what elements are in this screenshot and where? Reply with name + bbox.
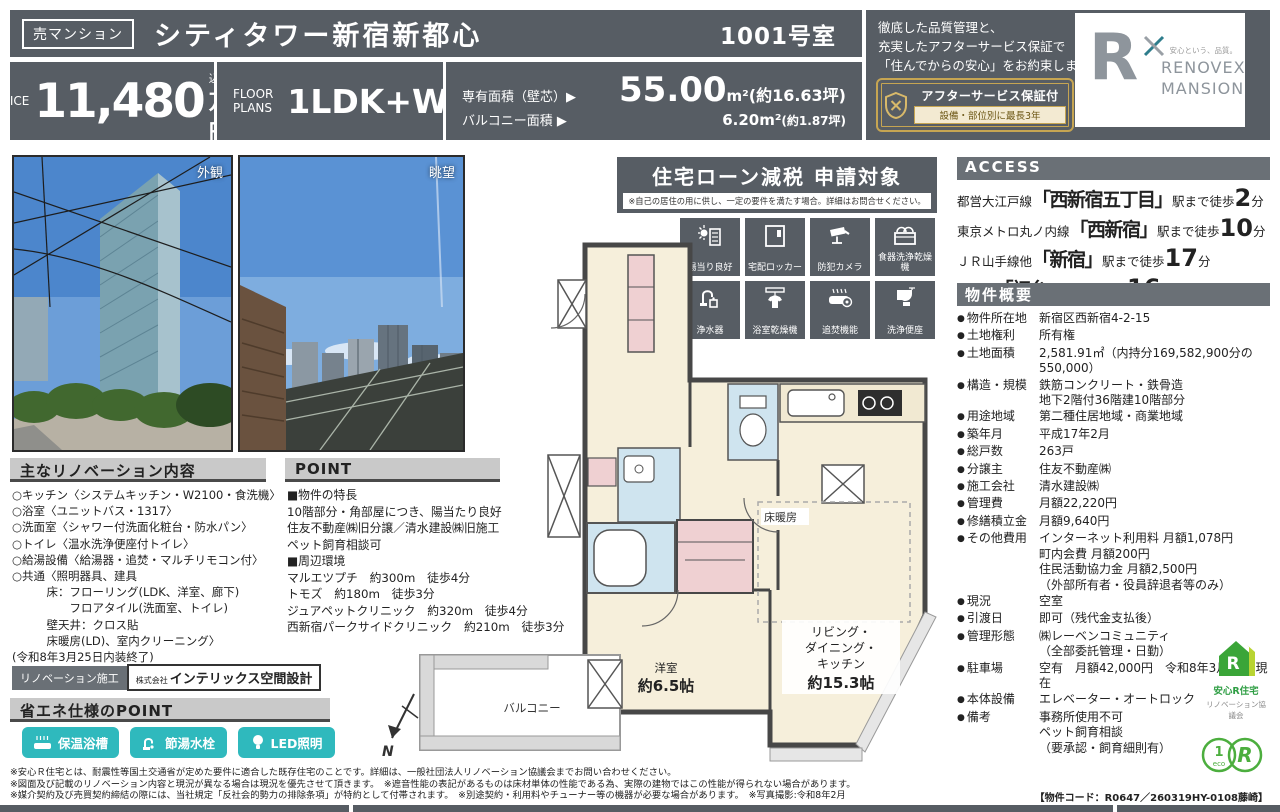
renovation-item: ○洗面室〈シャワー付洗面化粧台・防水パン〉: [12, 519, 287, 535]
price-label: PRICE: [0, 94, 29, 108]
room-number: 1001号室: [720, 17, 836, 51]
eco-r-badges: 1 eco R: [1200, 732, 1266, 778]
bottom-bar-gap: [1113, 805, 1117, 812]
disclaimer-block: ※安心Ｒ住宅とは、耐震性等国土交通省が定めた要件に適合した既存住宅のことです。詳…: [10, 767, 1020, 802]
point-list: ■物件の特長10階部分・角部屋につき、陽当たり良好住友不動産㈱旧分譲／清水建設㈱…: [287, 487, 587, 636]
overview-value: 住友不動産㈱: [1039, 462, 1111, 478]
overview-label: 引渡日: [957, 611, 1039, 627]
bathroom: [587, 523, 675, 593]
point-line: 住友不動産㈱旧分譲／清水建設㈱旧施工: [287, 520, 587, 537]
overview-label: 備考: [957, 710, 1039, 756]
overview-row: 総戸数 263戸: [957, 444, 1277, 460]
floor-heating-label: 床暖房: [764, 510, 797, 524]
overview-value: 空室: [1039, 594, 1063, 610]
quality-line2: 充実したアフターサービス保証で: [878, 37, 1101, 56]
exclusive-area-label: 専有面積（壁芯）▶: [462, 86, 576, 105]
renovex-x-icon: [1143, 35, 1165, 57]
floor-label-line2: PLANS: [233, 101, 272, 115]
ldk-line2: ダイニング・: [805, 640, 877, 655]
access-line: ＪＲ山手線他「新宿」駅まで徒歩17分: [957, 244, 1275, 272]
view-photo-label: 眺望: [429, 162, 455, 181]
access-line: 東京メトロ丸ノ内線「西新宿」駅まで徒歩10分: [957, 214, 1275, 242]
minutes-unit: 分: [1198, 251, 1211, 270]
renovation-list: ○キッチン〈システムキッチン・W2100・食洗機〉○浴室〈ユニットバス・1317…: [12, 487, 287, 665]
renovex-r-glyph: R: [1089, 21, 1138, 95]
quality-line3: 「住んでからの安心」をお約束します。: [878, 56, 1101, 75]
floor-plan-value: 1LDK+W: [287, 82, 448, 121]
rail-line: 東京メトロ丸ノ内線: [957, 221, 1070, 240]
overview-label: 本体設備: [957, 692, 1039, 708]
renovation-item: ○キッチン〈システムキッチン・W2100・食洗機〉: [12, 487, 287, 503]
sale-type-badge: 売マンション: [22, 19, 134, 49]
eco-btn-bath: 保温浴槽: [22, 727, 119, 758]
bottom-bar-gap: [349, 805, 353, 812]
area-cell: 専有面積（壁芯）▶ 55.00 m² (約16.63坪) バルコニー面積 ▶ 6…: [446, 62, 862, 140]
overview-row: 構造・規模 鉄筋コンクリート・鉄骨造地下2階付36階建10階部分: [957, 378, 1277, 409]
exterior-photo: 外観: [12, 155, 233, 452]
eco-circle-number: 1: [1214, 745, 1223, 760]
overview-label: 用途地域: [957, 409, 1039, 425]
anshin-org: リノベーション協議会: [1203, 699, 1269, 721]
compass-north: N: [382, 694, 418, 760]
anshin-name: 安心R住宅: [1203, 683, 1269, 697]
overview-value: エレベーター・オートロック: [1039, 692, 1195, 708]
overview-value: 新宿区西新宿4-2-15: [1039, 311, 1150, 327]
walk-minutes: 2: [1235, 184, 1252, 212]
renovation-item: 壁天井：クロス貼: [12, 617, 287, 633]
point-line: 西新宿パークサイドクリニック 約210m 徒歩3分: [287, 619, 587, 636]
overview-row: 物件所在地 新宿区西新宿4-2-15: [957, 311, 1277, 327]
after-service-warranty-badge: アフターサービス保証付 設備・部位別に最長3年: [876, 78, 1074, 132]
renovation-item: 床：フローリング(LDK、洋室、廊下): [12, 584, 287, 600]
overview-row: 土地面積 2,581.91㎡（内持分169,582,900分の550,000）: [957, 346, 1277, 377]
station-name: 「新宿」: [1032, 245, 1102, 272]
balcony-area-value: 6.20m²: [722, 111, 781, 129]
logo-name: RENOVEX MANSION: [1161, 57, 1246, 99]
overview-row: 用途地域 第二種住居地域・商業地域: [957, 409, 1277, 425]
overview-value: 事務所使用不可ペット飼育相談（要承認・飼育細則有）: [1039, 710, 1171, 756]
ldk-label: リビング・ ダイニング・ キッチン 約15.3帖: [782, 620, 900, 694]
overview-label: 管理形態: [957, 629, 1039, 660]
renovation-header: 主なリノベーション内容: [10, 458, 266, 482]
exterior-photo-image: [14, 157, 231, 450]
anshin-r-logo: R 安心R住宅 リノベーション協議会: [1203, 636, 1269, 721]
overview-row: 分譲主 住友不動産㈱: [957, 462, 1277, 478]
loan-banner-title: 住宅ローン減税 申請対象: [617, 161, 937, 190]
eco-btn-faucet: 節湯水栓: [130, 727, 227, 758]
water-saving-faucet-icon: [142, 735, 159, 751]
company-prefix: 株式会社: [136, 676, 168, 685]
floor-plans-label: FLOOR PLANS: [233, 87, 273, 115]
overview-value: 鉄筋コンクリート・鉄骨造地下2階付36階建10階部分: [1039, 378, 1185, 409]
toilet-room: [728, 384, 778, 460]
overview-label: 総戸数: [957, 444, 1039, 460]
overview-row: 施工会社 清水建設㈱: [957, 479, 1277, 495]
overview-row: 引渡日 即可（残代金支払後）: [957, 611, 1277, 627]
anshin-house-icon: R: [1213, 636, 1259, 678]
overview-value: 清水建設㈱: [1039, 479, 1099, 495]
loan-tax-banner: 住宅ローン減税 申請対象 ※自己の居住の用に供し、一定の要件を満たす場合。詳細は…: [617, 157, 937, 213]
overview-row: 管理費 月額22,220円: [957, 496, 1277, 512]
point-line: 10階部分・角部屋につき、陽当たり良好: [287, 504, 587, 521]
loan-banner-note: ※自己の居住の用に供し、一定の要件を満たす場合。詳細はお問合せください。: [623, 193, 931, 209]
bedroom-name: 洋室: [655, 661, 678, 675]
warranty-title: アフターサービス保証付: [914, 87, 1066, 104]
overview-label: その他費用: [957, 531, 1039, 593]
disclaimer-line2: ※図面及び記載のリノベーション内容と現況が異なる場合は現況を優先させて頂きます。…: [10, 779, 1020, 791]
overview-header: 物件概要: [957, 283, 1270, 306]
balcony-label: バルコニー: [503, 701, 560, 715]
renovation-item: 床暖房(LD)、室内クリーニング〉: [12, 633, 287, 649]
overview-value: インターネット利用料 月額1,078円町内会費 月額200円住民活動協力金 月額…: [1039, 531, 1233, 593]
eco-btn-label: LED照明: [271, 733, 323, 752]
renovation-item: ○共通〈照明器具、建具: [12, 568, 287, 584]
property-code: 【物件コード：R0647／260319HY-0108藤崎】: [1035, 789, 1268, 804]
logo-tagline: 安心という、品質。: [1170, 45, 1238, 56]
overview-value: ㈱レーベンコミュニティ（全部委託管理・日勤）: [1039, 629, 1171, 660]
rail-line: ＪＲ山手線他: [957, 251, 1032, 270]
price-value: 11,480: [34, 74, 203, 129]
quality-statement: 徹底した品質管理と、 充実したアフターサービス保証で 「住んでからの安心」をお約…: [878, 18, 1101, 75]
overview-label: 分譲主: [957, 462, 1039, 478]
page-title: シティタワー新宿新都心: [154, 14, 482, 53]
station-name: 「西新宿」: [1070, 215, 1158, 242]
rail-line: 都営大江戸線: [957, 191, 1032, 210]
overview-value: 2,581.91㎡（内持分169,582,900分の550,000）: [1039, 346, 1277, 377]
point-line: トモズ 約180m 徒歩3分: [287, 586, 587, 603]
shield-tools-icon: [884, 91, 908, 119]
svg-text:R: R: [1226, 654, 1239, 674]
eco-btn-led: LED照明: [238, 727, 335, 758]
logo-name-line2: MANSION: [1161, 79, 1244, 98]
minutes-unit: 分: [1251, 191, 1264, 210]
exclusive-area-tsubo: (約16.63坪): [749, 82, 846, 106]
entry-closet: [628, 255, 654, 352]
renovation-item: フロアタイル(洗面室、トイレ): [12, 600, 287, 616]
bottom-bar: [0, 805, 1280, 812]
overview-label: 構造・規模: [957, 378, 1039, 409]
exclusive-area-row: 専有面積（壁芯）▶ 55.00 m² (約16.63坪): [462, 70, 846, 110]
overview-value: 月額22,220円: [1039, 496, 1117, 512]
quality-line1: 徹底した品質管理と、: [878, 18, 1101, 37]
company-name: インテリックス空間設計: [170, 672, 313, 687]
overview-label: 修繕積立金: [957, 514, 1039, 530]
warranty-subtitle: 設備・部位別に最長3年: [914, 106, 1066, 124]
eco-header: 省エネ仕様のPOINT: [10, 698, 330, 722]
renovation-item: (令和8年3月25日内装終了): [12, 649, 287, 665]
flyer-page: 売マンション シティタワー新宿新都心 1001号室 PRICE 11,480 （…: [0, 0, 1280, 812]
eco-btn-label: 節湯水栓: [165, 733, 215, 752]
overview-row: 現況 空室: [957, 594, 1277, 610]
walk-minutes: 10: [1220, 214, 1253, 242]
floor-plan-cell: FLOOR PLANS 1LDK+W: [217, 62, 443, 140]
eco-btn-label: 保温浴槽: [58, 733, 108, 752]
renovation-company: 株式会社インテリックス空間設計: [127, 664, 322, 691]
eco-buttons: 保温浴槽 節湯水栓 LED照明: [22, 727, 335, 758]
floor-label-line1: FLOOR: [233, 87, 273, 101]
point-line: ■周辺環境: [287, 553, 587, 570]
walk-text: 駅まで徒歩: [1157, 221, 1220, 240]
overview-label: 管理費: [957, 496, 1039, 512]
led-bulb-icon: [251, 734, 265, 751]
overview-label: 駐車場: [957, 661, 1039, 692]
renovex-logo: R 安心という、品質。 RENOVEX MANSION: [1075, 13, 1245, 127]
walk-text: 駅まで徒歩: [1102, 251, 1165, 270]
ldk-line3: キッチン: [817, 657, 865, 671]
r-circle-text: R: [1237, 743, 1252, 767]
balcony-area-label: バルコニー面積 ▶: [462, 110, 567, 129]
kitchen-counter: [780, 384, 925, 422]
renovation-item: ○給湯設備〈給湯器・追焚・マルチリモコン付〉: [12, 552, 287, 568]
overview-label: 物件所在地: [957, 311, 1039, 327]
exclusive-area-value: 55.00: [619, 70, 727, 110]
overview-label: 土地権利: [957, 328, 1039, 344]
renovation-builder-badge: リノベーション施工: [12, 666, 127, 690]
station-name: 「西新宿五丁目」: [1032, 185, 1172, 212]
overview-label: 現況: [957, 594, 1039, 610]
walk-minutes: 17: [1165, 244, 1198, 272]
renovation-builder: リノベーション施工 株式会社インテリックス空間設計: [12, 664, 321, 691]
balcony-area-row: バルコニー面積 ▶ 6.20m² (約1.87坪): [462, 110, 846, 129]
disclaimer-line3: ※媒介契約及び売買契約締結の際には、当社規定「反社会的勢力の排除条項」が特約とし…: [10, 790, 1020, 802]
point-line: ジュアペットクリニック 約320m 徒歩4分: [287, 603, 587, 620]
overview-value: 月額9,640円: [1039, 514, 1109, 530]
bedroom-size: 約6.5帖: [638, 677, 695, 695]
overview-value: 第二種住居地域・商業地域: [1039, 409, 1183, 425]
ldk-size: 約15.3帖: [807, 674, 874, 692]
overview-label: 築年月: [957, 427, 1039, 443]
logo-name-line1: RENOVEX: [1161, 58, 1246, 77]
access-header: ACCESS: [957, 157, 1270, 180]
eco-circle-text: eco: [1213, 760, 1225, 768]
exterior-photo-label: 外観: [197, 162, 223, 181]
north-label: N: [382, 744, 394, 760]
overview-value: 263戸: [1039, 444, 1074, 460]
overview-value: 即可（残代金支払後）: [1039, 611, 1159, 627]
overview-row: 修繕積立金 月額9,640円: [957, 514, 1277, 530]
point-line: マルエツプチ 約300m 徒歩4分: [287, 570, 587, 587]
balcony-area-tsubo: (約1.87坪): [781, 112, 846, 129]
minutes-unit: 分: [1253, 221, 1266, 240]
closet: [677, 520, 753, 593]
overview-row: 土地権利 所有権: [957, 328, 1277, 344]
title-bar: 売マンション シティタワー新宿新都心 1001号室: [10, 10, 862, 57]
point-header: POINT: [285, 458, 500, 482]
overview-row: その他費用 インターネット利用料 月額1,078円町内会費 月額200円住民活動…: [957, 531, 1277, 593]
ldk-line1: リビング・: [811, 625, 871, 639]
exclusive-area-unit: m²: [727, 87, 749, 105]
header-right-block: 徹底した品質管理と、 充実したアフターサービス保証で 「住んでからの安心」をお約…: [866, 10, 1270, 140]
overview-label: 土地面積: [957, 346, 1039, 377]
overview-label: 施工会社: [957, 479, 1039, 495]
bottom-balcony-strip: [770, 748, 862, 761]
renovation-item: ○浴室〈ユニットバス・1317〉: [12, 503, 287, 519]
renovation-item: ○トイレ〈温水洗浄便座付トイレ〉: [12, 536, 287, 552]
overview-value: 平成17年2月: [1039, 427, 1110, 443]
disclaimer-line1: ※安心Ｒ住宅とは、耐震性等国土交通省が定めた要件に適合した既存住宅のことです。詳…: [10, 767, 1020, 779]
access-line: 都営大江戸線「西新宿五丁目」駅まで徒歩2分: [957, 184, 1275, 212]
overview-value: 所有権: [1039, 328, 1075, 344]
point-line: ペット飼育相談可: [287, 537, 587, 554]
walk-text: 駅まで徒歩: [1172, 191, 1235, 210]
insulated-bathtub-icon: [33, 735, 52, 751]
overview-row: 築年月 平成17年2月: [957, 427, 1277, 443]
point-line: ■物件の特長: [287, 487, 587, 504]
price-cell: PRICE 11,480 （税込） 万円: [10, 62, 214, 140]
